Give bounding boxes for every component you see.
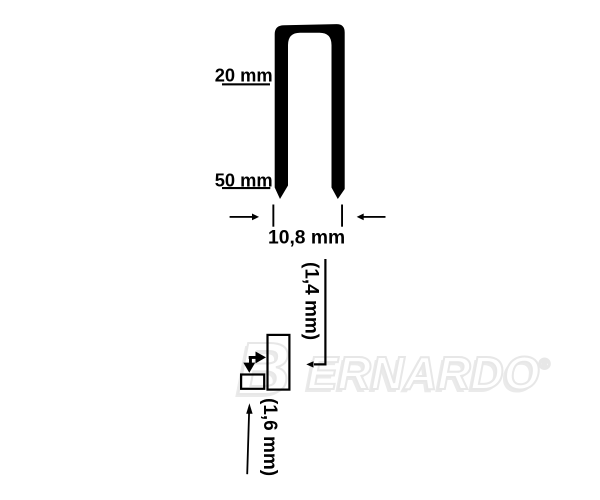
svg-text:(1,6 mm): (1,6 mm) [259, 398, 280, 476]
svg-text:(1,4 mm): (1,4 mm) [300, 262, 321, 340]
svg-text:20 mm: 20 mm [215, 65, 273, 86]
svg-text:ERNARDO: ERNARDO [307, 347, 540, 399]
svg-text:10,8 mm: 10,8 mm [268, 227, 345, 248]
svg-text:®: ® [539, 356, 550, 373]
